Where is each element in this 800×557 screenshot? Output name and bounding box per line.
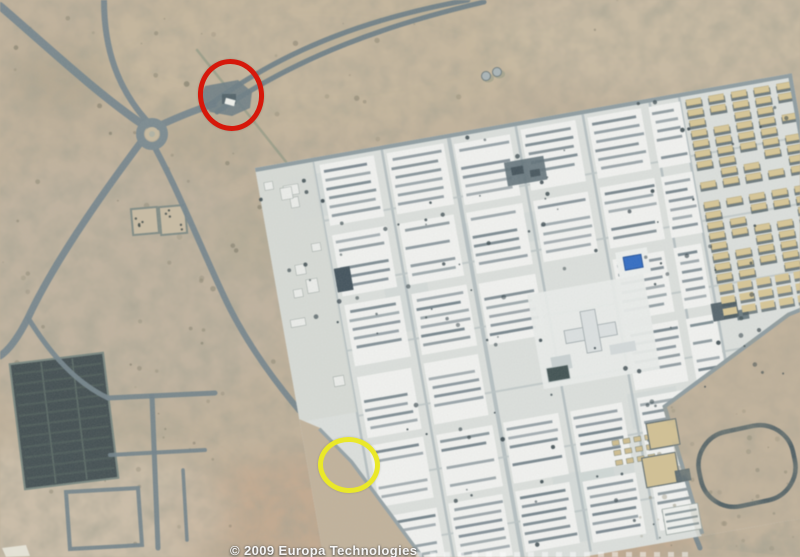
satellite-map xyxy=(0,0,800,557)
image-grain-overlay xyxy=(0,0,800,557)
satellite-screenshot: © 2009 Europa Technologies xyxy=(0,0,800,557)
copyright-watermark: © 2009 Europa Technologies xyxy=(230,543,417,557)
bottom-watermark-fragments xyxy=(416,552,696,557)
